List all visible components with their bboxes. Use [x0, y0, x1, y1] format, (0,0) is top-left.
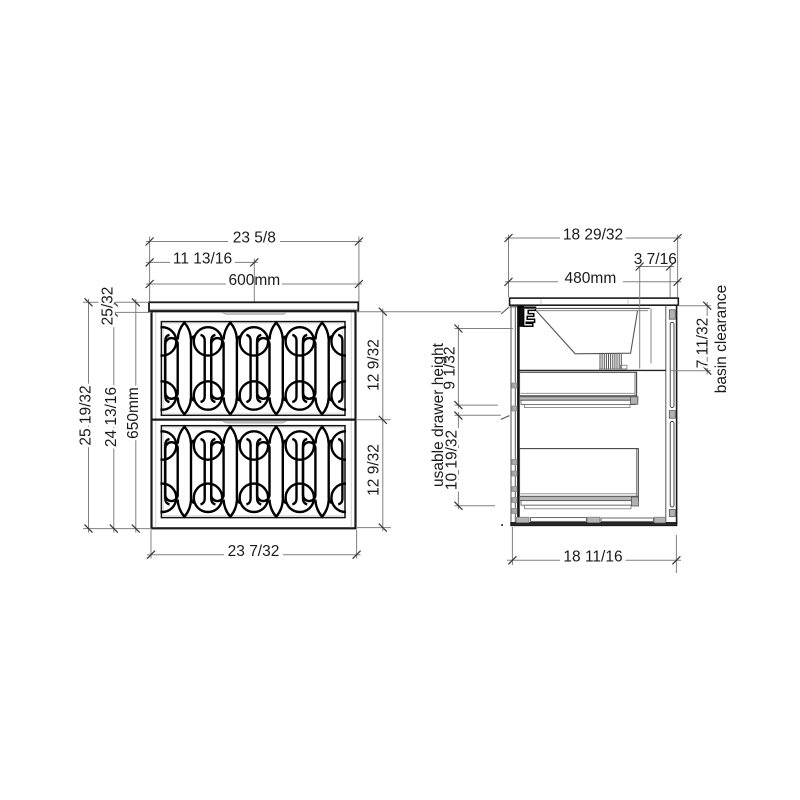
svg-text:12 9/32: 12 9/32	[366, 444, 383, 496]
svg-text:650mm: 650mm	[125, 387, 142, 439]
svg-text:3 7/16: 3 7/16	[634, 251, 677, 268]
svg-text:480mm: 480mm	[565, 270, 617, 287]
svg-text:600mm: 600mm	[228, 272, 280, 289]
svg-text:11 13/16: 11 13/16	[173, 251, 232, 268]
svg-text:12 9/32: 12 9/32	[366, 339, 383, 391]
svg-text:25/32: 25/32	[99, 287, 116, 326]
svg-text:23 5/8: 23 5/8	[233, 230, 276, 247]
svg-text:usable drawer height: usable drawer height	[430, 342, 447, 487]
svg-text:24 13/16: 24 13/16	[103, 387, 120, 447]
svg-text:18 11/16: 18 11/16	[563, 549, 622, 566]
svg-text:25 19/32: 25 19/32	[78, 385, 95, 445]
svg-text:23 7/32: 23 7/32	[228, 543, 280, 560]
svg-text:basin clearance: basin clearance	[713, 285, 730, 394]
svg-text:7 11/32: 7 11/32	[695, 318, 712, 369]
svg-text:18 29/32: 18 29/32	[563, 226, 623, 243]
